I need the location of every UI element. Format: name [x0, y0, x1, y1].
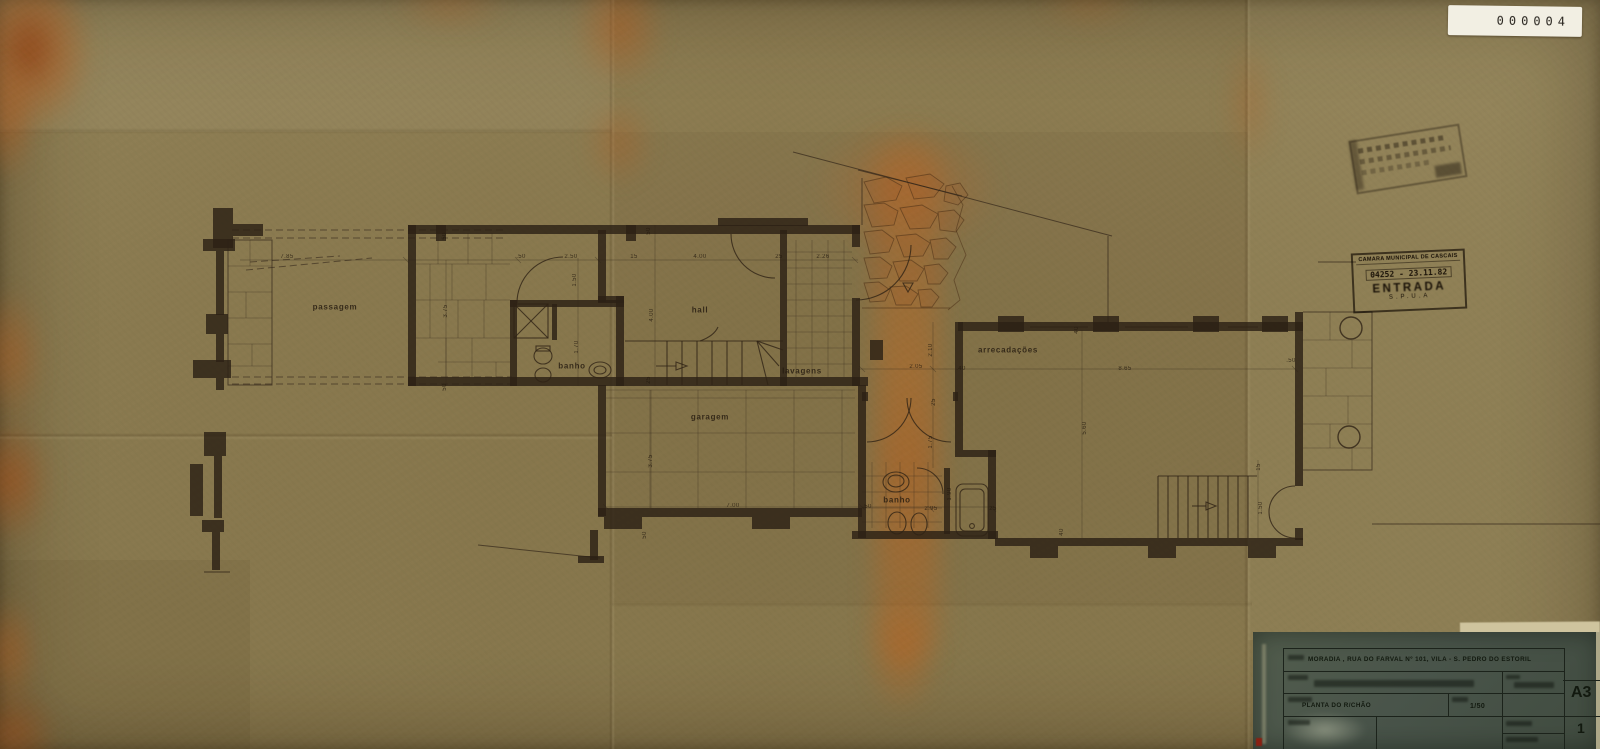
title-block-table: MORADIA , RUA DO FARVAL Nº 101, VILA - S…	[1283, 648, 1565, 749]
dimension-label: 2.10	[928, 343, 934, 356]
illegible-text	[1514, 682, 1554, 688]
dimension-label: 2.26	[816, 254, 829, 260]
dimension-label: 50	[646, 227, 652, 234]
dimension-label: 50	[442, 383, 448, 390]
paper-stain	[812, 115, 1002, 260]
dimension-label: 25	[931, 398, 937, 405]
paper-tone-patch	[0, 0, 612, 132]
illegible-text	[1314, 680, 1474, 687]
room-label: arrecadações	[978, 346, 1038, 355]
dimension-label: 1.50	[1258, 501, 1264, 514]
paper-stain	[862, 592, 942, 717]
table-line	[1502, 693, 1503, 749]
dimension-label: 1.50	[572, 273, 578, 286]
table-line	[1284, 716, 1564, 717]
dimension-label: 8.65	[1118, 366, 1131, 372]
dimension-label: .50	[516, 254, 526, 260]
walls	[190, 208, 1303, 570]
fold-crease	[609, 0, 615, 749]
dimension-label: 15	[1256, 463, 1262, 470]
dimension-label: 2.05	[909, 364, 922, 370]
paper-edge	[1262, 644, 1266, 744]
stamp-ink-smudge	[1434, 162, 1462, 178]
paper-tone-patch	[0, 560, 250, 749]
table-line	[1376, 716, 1377, 749]
field-label-smudge	[1506, 675, 1520, 679]
entry-stamp: CÂMARA MUNICIPAL DE CASCAIS 04252 - 23.1…	[1351, 249, 1468, 314]
dimension-label: 3.75	[443, 304, 449, 317]
field-label-smudge	[1288, 675, 1308, 680]
field-label-smudge	[1288, 720, 1310, 725]
room-label: banho	[883, 496, 911, 505]
field-label-smudge	[1506, 721, 1532, 726]
stamp-org-line: CÂMARA MUNICIPAL DE CASCAIS	[1356, 253, 1460, 266]
fold-crease	[612, 601, 1252, 607]
dimension-label: .50	[862, 504, 872, 510]
room-label: banho	[558, 362, 586, 371]
table-line	[1284, 693, 1564, 694]
fold-crease	[0, 433, 612, 440]
paper-stain	[0, 0, 95, 135]
dimension-label: 25	[646, 376, 652, 383]
table-line	[1502, 733, 1564, 734]
paper-stain	[0, 685, 60, 749]
dimension-label: 1.70	[574, 340, 580, 353]
paper-stain	[876, 140, 938, 660]
room-label: garagem	[691, 413, 729, 422]
fixtures-and-doors	[204, 234, 1362, 572]
paper-stain	[0, 285, 47, 425]
table-line	[1502, 671, 1503, 693]
dimension-label: 7.85	[280, 254, 293, 260]
dimension-label: 25	[989, 506, 996, 512]
dimension-label: 2.95	[924, 506, 937, 512]
dimension-label: 2.50	[564, 254, 577, 260]
dimension-label: 5.60	[1082, 421, 1088, 434]
room-label: passagem	[313, 303, 358, 312]
field-label-smudge	[1452, 697, 1468, 702]
room-label: hall	[692, 306, 709, 315]
tag-number: 000004	[1497, 14, 1571, 29]
drawing-title: PLANTA DO R/CHÃO	[1302, 702, 1371, 709]
stamp-number-date: 04252 - 23.11.82	[1366, 266, 1451, 281]
field-label-smudge	[1506, 737, 1538, 742]
paper-tone-patch	[612, 132, 1248, 602]
dimension-label: 4.00	[693, 254, 706, 260]
paper-stain	[390, 0, 510, 35]
sheet-number: 1	[1577, 720, 1585, 736]
paper-stain	[1222, 35, 1277, 170]
table-line	[1284, 671, 1564, 672]
dimension-label: 7.00	[726, 503, 739, 509]
paper-stain	[583, 95, 655, 190]
room-label: lavagens	[782, 367, 822, 376]
fold-crease	[0, 128, 612, 134]
dimension-label: 50	[642, 531, 648, 538]
dimension-label: 4.00	[649, 308, 655, 321]
dimension-label: 15	[630, 254, 637, 260]
dimension-label: 1.75	[928, 435, 934, 448]
dimension-label: 1.90	[947, 487, 953, 500]
dimension-label: 25	[775, 254, 782, 260]
paper-tone-patch	[1248, 0, 1600, 640]
paper-stain	[0, 595, 40, 710]
table-line	[1448, 693, 1449, 716]
address-line: MORADIA , RUA DO FARVAL Nº 101, VILA - S…	[1308, 656, 1531, 663]
dimension-label: .40	[956, 366, 966, 372]
faded-stamp	[1348, 124, 1467, 195]
stone-paving	[862, 174, 968, 310]
paper-stain	[572, 0, 667, 90]
scanned-drawing-sheet: passagembanhohalllavagensgaragemarrecada…	[0, 0, 1600, 749]
paper-stain	[1035, 0, 1145, 33]
field-label-smudge	[1288, 655, 1304, 660]
dimension-label: 3.75	[648, 454, 654, 467]
sheet-size: A3	[1571, 684, 1591, 702]
dimension-label: 50	[442, 232, 448, 239]
dimension-label: 40	[1059, 528, 1065, 535]
numbering-tag: 000004	[1448, 5, 1582, 37]
dimension-label: .50	[1286, 358, 1296, 364]
dimension-label: 40	[1074, 326, 1080, 333]
paper-stain	[0, 55, 38, 185]
sheet-format-column: A3 1	[1567, 632, 1600, 749]
paper-stain	[0, 415, 53, 545]
scale-value: 1/50	[1470, 703, 1485, 710]
title-block: MORADIA , RUA DO FARVAL Nº 101, VILA - S…	[1253, 632, 1600, 749]
fold-crease	[1244, 0, 1251, 749]
red-mark	[1256, 738, 1262, 746]
